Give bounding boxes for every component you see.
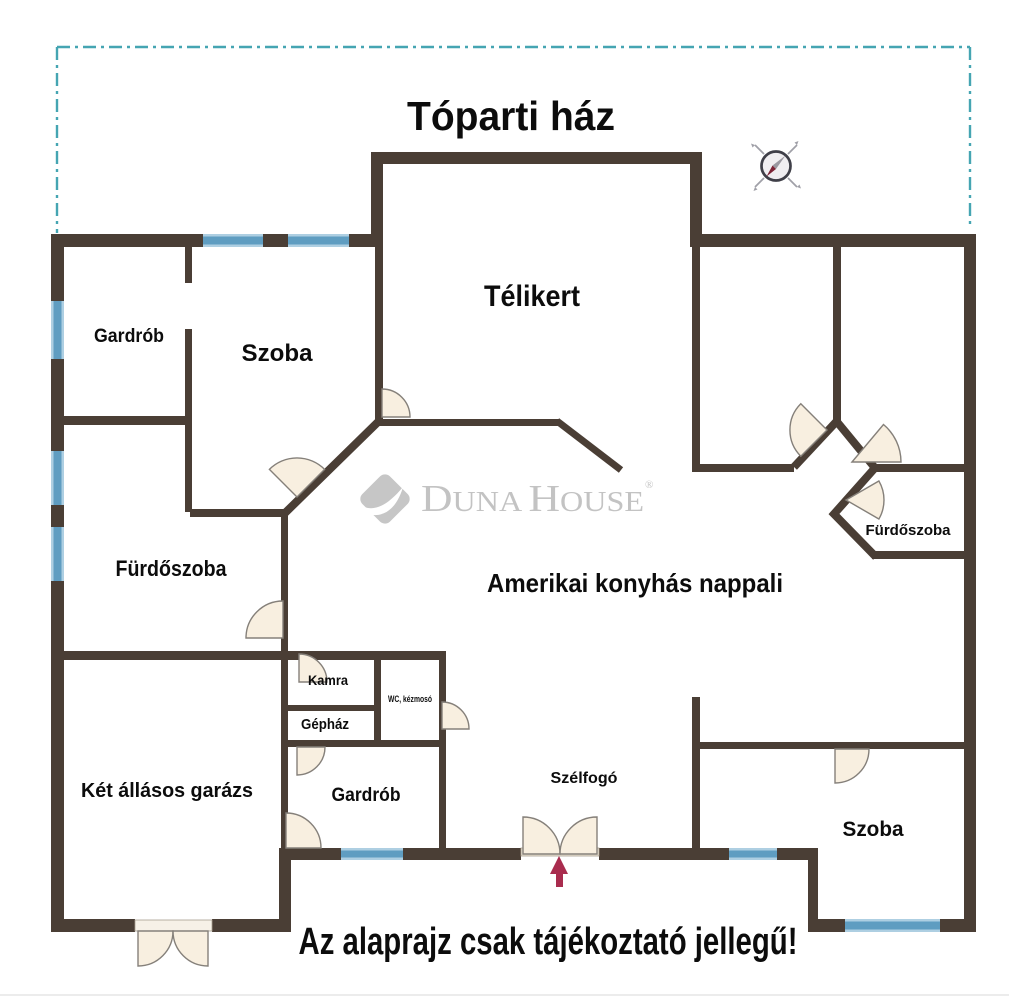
svg-text:Télikert: Télikert: [484, 280, 580, 313]
svg-text:Gardrób: Gardrób: [94, 326, 164, 347]
svg-text:Tóparti ház: Tóparti ház: [407, 93, 615, 139]
svg-text:Fürdőszoba: Fürdőszoba: [116, 556, 228, 581]
svg-text:WC, kézmosó: WC, kézmosó: [388, 694, 432, 704]
svg-text:Az alaprajz csak tájékoztató j: Az alaprajz csak tájékoztató jellegű!: [299, 921, 798, 963]
svg-text:Két állásos garázs: Két állásos garázs: [81, 780, 253, 802]
svg-text:®: ®: [645, 479, 653, 491]
svg-text:Kamra: Kamra: [308, 672, 348, 688]
svg-text:Szoba: Szoba: [843, 818, 904, 841]
svg-text:Amerikai konyhás nappali: Amerikai konyhás nappali: [487, 568, 783, 598]
svg-text:Szélfogó: Szélfogó: [551, 770, 618, 787]
svg-text:Szoba: Szoba: [242, 340, 314, 367]
svg-text:Gépház: Gépház: [301, 716, 349, 733]
svg-text:Gardrób: Gardrób: [332, 785, 401, 806]
svg-text:Fürdőszoba: Fürdőszoba: [866, 522, 952, 539]
